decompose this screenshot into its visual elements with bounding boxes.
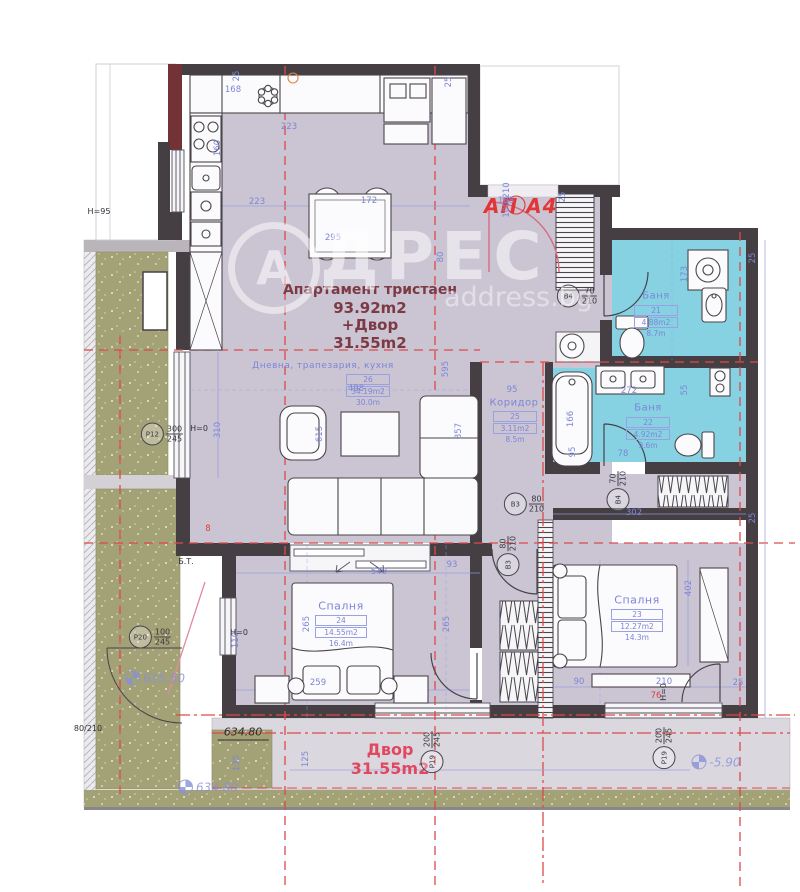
watermark-logo-icon: А [228,222,320,314]
watermark-site: address.bg [444,282,593,313]
floor-plan-drawing [0,0,800,892]
floor-plan: АП А4 Апартамент тристаен 93.92m2 +Двор … [0,0,800,892]
